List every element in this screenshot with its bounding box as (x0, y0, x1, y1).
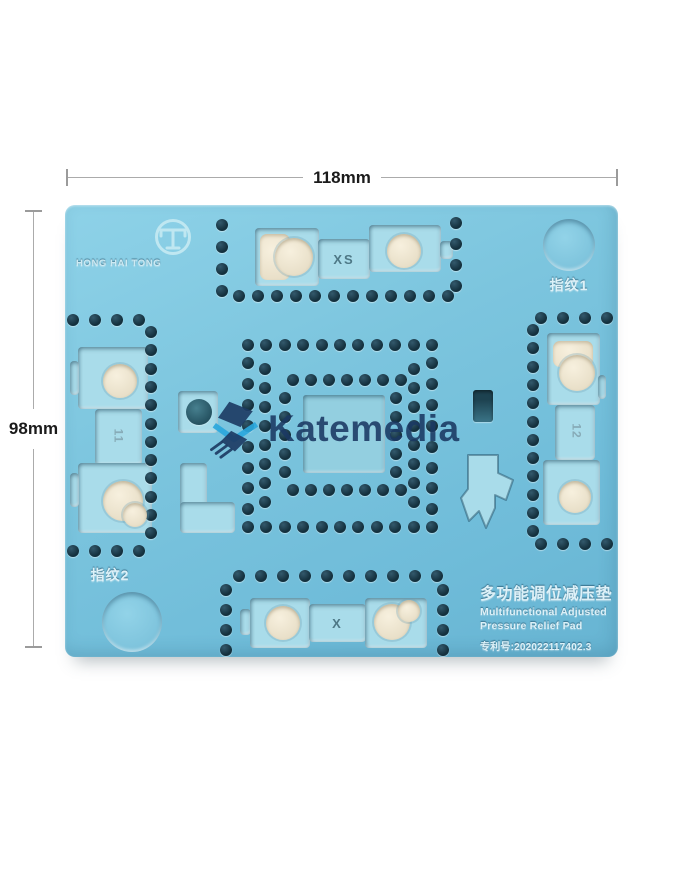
product-title-en-1: Multifunctional Adjusted (480, 605, 620, 619)
slot-hole (103, 364, 137, 398)
dimension-line (68, 177, 303, 178)
pad-hole (557, 312, 569, 324)
pad-hole (450, 280, 462, 292)
pad-hole (371, 521, 383, 533)
pad-hole (347, 290, 359, 302)
size-label-left: 11 (111, 429, 125, 444)
pad-hole (145, 381, 157, 393)
pad-hole (557, 538, 569, 550)
pad-hole (341, 374, 353, 386)
pad-hole (527, 361, 539, 373)
pad-hole (328, 290, 340, 302)
pad-hole (111, 314, 123, 326)
slot-hole (123, 503, 147, 527)
pad-hole (426, 482, 438, 494)
pad-hole (408, 521, 420, 533)
pad-hole (220, 624, 232, 636)
pad-hole (145, 344, 157, 356)
pad-hole (216, 263, 228, 275)
pad-hole (297, 521, 309, 533)
product-text-block: 多功能调位减压垫 Multifunctional Adjusted Pressu… (480, 585, 620, 653)
pad-hole (408, 382, 420, 394)
pad-hole (287, 374, 299, 386)
pad-hole (323, 484, 335, 496)
pad-hole (359, 374, 371, 386)
pad-hole (145, 399, 157, 411)
pad-hole (259, 363, 271, 375)
product-photo: 118mm 98mm HONG HAI TONG XS 指纹1 (0, 0, 700, 869)
patent-number: 专利号:202022117402.3 (480, 638, 620, 653)
pad-hole (450, 217, 462, 229)
slot-hole (398, 600, 420, 622)
pad-hole (527, 525, 539, 537)
pad-hole (527, 489, 539, 501)
pad-hole (408, 339, 420, 351)
pad-hole (271, 290, 283, 302)
pad-hole (535, 312, 547, 324)
size-label-right: 12 (570, 423, 584, 438)
dimension-line (381, 177, 616, 178)
pad-hole (426, 521, 438, 533)
slot-hole (559, 355, 595, 391)
pad-hole (67, 545, 79, 557)
pad-hole (305, 484, 317, 496)
slot-hole (559, 481, 591, 513)
pad-hole (527, 324, 539, 336)
pad-hole (450, 259, 462, 271)
pad-hole (377, 484, 389, 496)
pad-hole (527, 379, 539, 391)
pad-hole (216, 219, 228, 231)
width-dimension-label: 118mm (303, 168, 381, 188)
pad-hole (389, 339, 401, 351)
pocket-left-slot-tab (70, 473, 79, 507)
slot-hole (266, 606, 300, 640)
pad-hole (408, 363, 420, 375)
pad-hole (145, 436, 157, 448)
pad-hole (352, 521, 364, 533)
pad-hole (371, 339, 383, 351)
width-dimension: 118mm (66, 169, 618, 186)
pad-hole (527, 452, 539, 464)
pad-hole (377, 374, 389, 386)
pad-hole (334, 521, 346, 533)
pad-hole (408, 477, 420, 489)
pad-hole (437, 584, 449, 596)
pad-hole (409, 570, 421, 582)
pad-hole (316, 339, 328, 351)
pad-hole (145, 454, 157, 466)
pad-hole (242, 503, 254, 515)
size-label-top: XS (318, 239, 370, 279)
pad-hole (290, 290, 302, 302)
pad-hole (437, 604, 449, 616)
pad-hole (277, 570, 289, 582)
pad-hole (601, 312, 613, 324)
pad-hole (390, 466, 402, 478)
pad-hole (527, 397, 539, 409)
dimension-tick (616, 169, 618, 186)
pad-hole (297, 339, 309, 351)
pad-hole (145, 472, 157, 484)
pad-hole (359, 484, 371, 496)
slot-hole (387, 234, 421, 268)
pad-hole (442, 290, 454, 302)
pad-hole (242, 357, 254, 369)
pad-hole (431, 570, 443, 582)
pad-hole (260, 521, 272, 533)
chip-icon (203, 397, 265, 461)
pad-hole (145, 491, 157, 503)
pad-hole (111, 545, 123, 557)
pad-hole (404, 290, 416, 302)
pad-hole (527, 416, 539, 428)
pad-hole (242, 482, 254, 494)
pad-hole (145, 363, 157, 375)
pad-hole (145, 527, 157, 539)
pad-hole (259, 496, 271, 508)
pad-hole (408, 496, 420, 508)
pad-hole (395, 374, 407, 386)
pocket-left-slot-tab (70, 361, 79, 395)
pad-hole (259, 477, 271, 489)
pad-hole (341, 484, 353, 496)
pad-hole (423, 290, 435, 302)
pad-hole (255, 570, 267, 582)
pad-hole (343, 570, 355, 582)
pocket-right-slot-tab (598, 375, 606, 399)
pad-hole (279, 466, 291, 478)
pad-hole (389, 521, 401, 533)
pad-hole (321, 570, 333, 582)
pad-hole (279, 521, 291, 533)
pad-hole (395, 484, 407, 496)
pad-hole (220, 604, 232, 616)
pad-hole (601, 538, 613, 550)
pad-hole (426, 339, 438, 351)
pocket-small-rect (473, 390, 493, 422)
pad-hole (579, 312, 591, 324)
pad-hole (426, 378, 438, 390)
watermark-text: Katemedia (268, 408, 460, 450)
fingerprint-label-2: 指纹2 (80, 565, 140, 585)
pad-hole (527, 342, 539, 354)
fingerprint-recess-1 (543, 219, 595, 271)
pad-hole (67, 314, 79, 326)
fingerprint-label-1: 指纹1 (539, 275, 599, 295)
pad-hole (309, 290, 321, 302)
pad-hole (233, 570, 245, 582)
pad-hole (216, 241, 228, 253)
pad-hole (145, 418, 157, 430)
pad-hole (323, 374, 335, 386)
pad-hole (259, 382, 271, 394)
pad-hole (242, 378, 254, 390)
height-dimension-label: 98mm (7, 409, 60, 449)
fingerprint-recess-2 (102, 592, 162, 652)
pad-hole (252, 290, 264, 302)
watermark: Katemedia (203, 394, 460, 464)
pad-hole (89, 545, 101, 557)
pocket-l-shape-foot (180, 502, 235, 533)
pad-hole (233, 290, 245, 302)
pad-hole (450, 238, 462, 250)
pocket-y-shape (455, 450, 521, 536)
pad-hole (387, 570, 399, 582)
pad-hole (437, 624, 449, 636)
pad-hole (216, 285, 228, 297)
product-title-en-2: Pressure Relief Pad (480, 619, 620, 633)
pad-hole (437, 644, 449, 656)
brand-logo-icon (151, 215, 195, 259)
slot-hole (275, 238, 313, 276)
pad-hole (133, 314, 145, 326)
pad-hole (385, 290, 397, 302)
pad-hole (426, 503, 438, 515)
dimension-tick (25, 646, 42, 648)
height-dimension: 98mm (25, 210, 42, 648)
pad-hole (299, 570, 311, 582)
brand-name: HONG HAI TONG (76, 258, 196, 269)
pad-hole (527, 470, 539, 482)
pad-hole (220, 584, 232, 596)
pad-hole (365, 570, 377, 582)
pad-hole (220, 644, 232, 656)
size-label-bottom: X (309, 604, 366, 642)
pad-hole (89, 314, 101, 326)
pad-hole (527, 507, 539, 519)
pad-hole (316, 521, 328, 533)
pad-hole (366, 290, 378, 302)
pad-hole (527, 434, 539, 446)
pad-hole (305, 374, 317, 386)
pad-hole (145, 326, 157, 338)
pad-hole (352, 339, 364, 351)
product-title-cn: 多功能调位减压垫 (480, 585, 620, 605)
pad-hole (260, 339, 272, 351)
pad-hole (334, 339, 346, 351)
pad-hole (133, 545, 145, 557)
pad-hole (426, 357, 438, 369)
pad-hole (242, 339, 254, 351)
pad-hole (579, 538, 591, 550)
pad-hole (279, 339, 291, 351)
pad-hole (535, 538, 547, 550)
pad-hole (287, 484, 299, 496)
pad-hole (242, 521, 254, 533)
